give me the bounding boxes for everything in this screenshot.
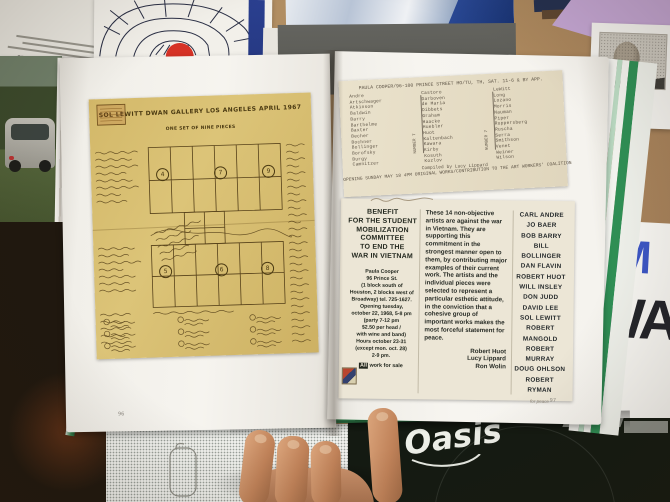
flyer-details: Paula Cooper96 Prince St.(1 block south …	[345, 268, 418, 360]
artist-name: BOB BARRY	[514, 231, 568, 242]
flyer-headline: BENEFITFOR THE STUDENTMOBILIZATIONCOMMIT…	[346, 208, 419, 262]
signatory-name: Ron Wolin	[424, 362, 506, 371]
artist-name: CARL ANDRE	[515, 210, 569, 221]
car	[5, 118, 55, 168]
flyer-right-column: CARL ANDREJO BAERBOB BARRYBILL BOLLINGER…	[513, 210, 569, 395]
car-photograph	[0, 56, 62, 226]
object-outline-drawing	[164, 442, 204, 500]
artist-name: BILL BOLLINGER	[514, 241, 568, 262]
right-page: PAULA COOPER/96-100 PRINCE STREET MO/TU,…	[327, 51, 609, 425]
photo-open-book-on-desk: COMPOSITE JOURNAL #1/2013	[0, 0, 670, 502]
checklist-columns: AndreArtschwagerAtkinsonBaldwinBarryBart…	[339, 84, 566, 169]
artist-name: WILL INSLEY	[514, 283, 568, 294]
artist-name: DAN FLAVIN	[514, 262, 568, 273]
car-wheel	[39, 160, 51, 172]
page-number-right: 97	[549, 398, 556, 404]
artist-name: ROBERT RYMAN	[513, 375, 567, 396]
artist-name: ROBERT MURRAY	[513, 344, 567, 365]
checklist-column: CastoroDarbovende MariaDibbetsGrahamHaac…	[421, 88, 487, 165]
page-number-left: 96	[118, 411, 124, 417]
sale-chip: All	[359, 362, 368, 368]
postage-stamp	[342, 367, 357, 384]
gray-smudge	[624, 421, 668, 433]
headline-line: FOR THE STUDENT	[347, 217, 419, 227]
artist-name: DOUG OHLSON	[513, 365, 567, 376]
car-wheel	[9, 160, 21, 172]
detail-line: 2-9 pm.	[345, 352, 417, 360]
left-page: SOL LEWITT DWAN GALLERY LOS ANGELES APRI…	[60, 54, 336, 433]
pencil-annotation	[369, 193, 439, 206]
car-window	[11, 124, 49, 140]
artist-name: JO BAER	[515, 221, 569, 232]
exhibition-checklist-card: PAULA COOPER/96-100 PRINCE STREET MO/TU,…	[338, 70, 567, 197]
artist-name: ROBERT MANGOLD	[513, 324, 567, 345]
flyer-artist-list: CARL ANDREJO BAERBOB BARRYBILL BOLLINGER…	[513, 210, 569, 396]
checklist-column: LeWittLongLozanoMorrisNaumanPiperRuppers…	[493, 85, 551, 162]
artist-name: SOL LEWITT	[513, 313, 567, 324]
headline-line: MOBILIZATION	[346, 226, 418, 236]
checklist-column: AndreArtschwagerAtkinsonBaldwinBarryBart…	[349, 92, 415, 169]
artist-name: DON JUDD	[514, 293, 568, 304]
open-book-spread: SOL LEWITT DWAN GALLERY LOS ANGELES APRI…	[55, 46, 611, 440]
finger	[274, 435, 310, 502]
flyer-middle-column: These 14 non-objective artists are again…	[420, 209, 512, 394]
artist-name: ROBERT HUOT	[514, 272, 568, 283]
sale-text: work for sale	[369, 362, 402, 368]
lewitt-grid-and-notes	[89, 92, 319, 359]
flyer-signatories: Robert HuotLucy LippardRon Wolin	[424, 347, 506, 371]
book-gutter-shadow	[323, 50, 343, 436]
flyer-closing-line: for peace	[512, 399, 566, 405]
artist-name: DAVID LEE	[514, 303, 568, 314]
lewitt-working-drawing: SOL LEWITT DWAN GALLERY LOS ANGELES APRI…	[89, 92, 319, 359]
finger	[310, 441, 341, 502]
oasis-underline-swash	[410, 454, 490, 470]
benefit-flyer: BENEFITFOR THE STUDENTMOBILIZATIONCOMMIT…	[338, 198, 574, 401]
flyer-left-column: BENEFITFOR THE STUDENTMOBILIZATIONCOMMIT…	[345, 208, 419, 393]
headline-line: WAR IN VIETNAM	[346, 252, 418, 262]
flyer-statement: These 14 non-objective artists are again…	[424, 209, 508, 343]
